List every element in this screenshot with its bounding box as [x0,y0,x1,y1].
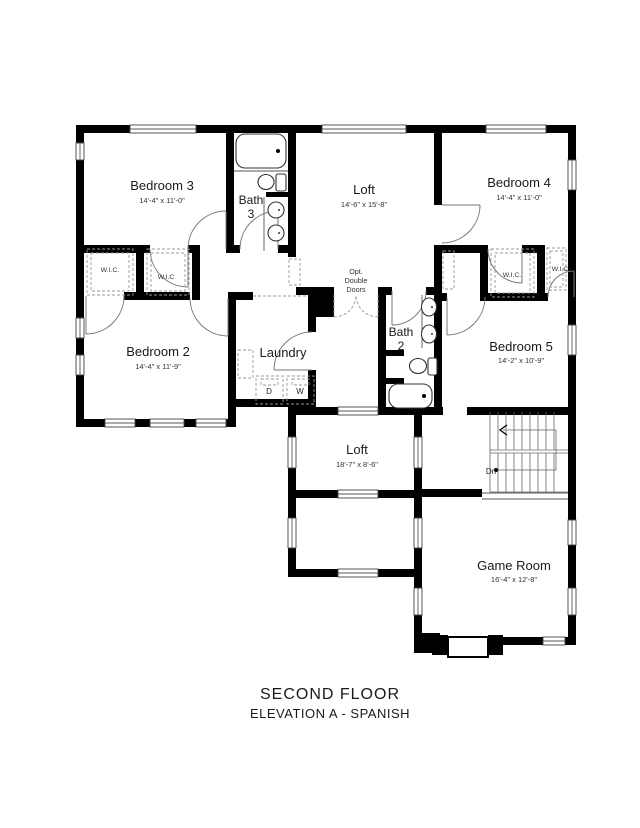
window [288,518,296,548]
wic-2-door [150,249,188,287]
opt-doors-label-line2: Double [345,276,368,285]
bath-3-number: 3 [248,207,255,221]
tub-faucet [422,394,426,398]
bedroom-5-label: Bedroom 5 [489,339,553,354]
sink [422,298,437,316]
window [196,419,226,427]
window [338,490,378,498]
stairs-down-label: Dn [486,467,496,476]
toilet-bowl [258,175,274,190]
stairs [490,412,568,492]
wic-3-label: W.I.C. [503,272,522,279]
toilet-tank [276,174,286,191]
bath-2-label: Bath [389,325,414,339]
window [76,318,84,338]
bedroom-4-door [442,205,480,243]
bedroom-5-door [447,297,485,335]
hall-linen-closet [443,251,454,289]
bath-2-fixtures [386,295,437,408]
window [76,355,84,375]
opt-doors-label-line1: Opt. [349,267,363,276]
plan-title: SECOND FLOOR ELEVATION A - SPANISH [250,686,410,721]
opt-double-doors [334,295,378,317]
dryer-label: D [266,387,272,396]
window [76,143,84,160]
sink [422,325,437,343]
laundry-label: Laundry [260,345,307,360]
wic-1-door [86,296,124,334]
floor-plan: Bedroom 3 14'-4" x 11'-0" Bath 3 Loft 14… [0,0,640,828]
sink [268,202,284,218]
floor-plan-page: Bedroom 3 14'-4" x 11'-0" Bath 3 Loft 14… [0,0,640,828]
game-room-dimensions: 16'-4" x 12'-8" [491,575,537,584]
window [486,125,546,133]
opt-doors-label-line3: Doors [346,285,366,294]
wic-2-label: W.I.C [158,274,175,281]
window [414,588,422,615]
laundry-cabinet [238,350,253,378]
bedroom-2-dimensions: 14'-4" x 11'-9" [135,362,181,371]
window [130,125,196,133]
hall-linen-closet [289,259,300,285]
window [288,437,296,468]
bedroom-2-label: Bedroom 2 [126,344,190,359]
sink [268,225,284,241]
window [322,125,406,133]
bath-3-label: Bath [239,193,264,207]
window [150,419,184,427]
toilet-bowl [410,359,427,374]
bedroom-4-label: Bedroom 4 [487,175,551,190]
fireplace [448,637,488,657]
wic-4-label: W.I.C [552,266,569,273]
window [105,419,135,427]
window [568,160,576,190]
window [414,518,422,548]
bedroom-5-dimensions: 14'-2" x 10'-9" [498,356,544,365]
bedroom-3-door [188,211,226,249]
window [414,437,422,468]
loft-upper-label: Loft [353,182,375,197]
washer-label: W [296,387,304,396]
plan-title-line1: SECOND FLOOR [260,686,400,703]
bedroom-3-dimensions: 14'-4" x 11'-0" [139,196,185,205]
room-labels: Bedroom 3 14'-4" x 11'-0" Bath 3 Loft 14… [101,175,569,584]
toilet-tank [428,358,437,375]
bedroom-4-dimensions: 14'-4" x 11'-0" [496,193,542,202]
bedroom-3-label: Bedroom 3 [130,178,194,193]
plan-title-line2: ELEVATION A - SPANISH [250,706,410,721]
window [543,637,565,645]
opening [338,407,378,415]
tub-faucet [276,149,280,153]
window [568,588,576,615]
window [568,520,576,545]
loft-upper-dimensions: 14'-6" x 15'-8" [341,200,387,209]
window [568,325,576,355]
wic-1-label: W.I.C. [101,267,120,274]
opening [338,569,378,577]
loft-lower-dimensions: 18'-7" x 8'-6" [336,460,378,469]
bath-2-door [392,291,426,325]
loft-lower-label: Loft [346,442,368,457]
game-room-label: Game Room [477,558,551,573]
bath-2-number: 2 [398,339,405,353]
bedroom-2-door [190,298,228,336]
